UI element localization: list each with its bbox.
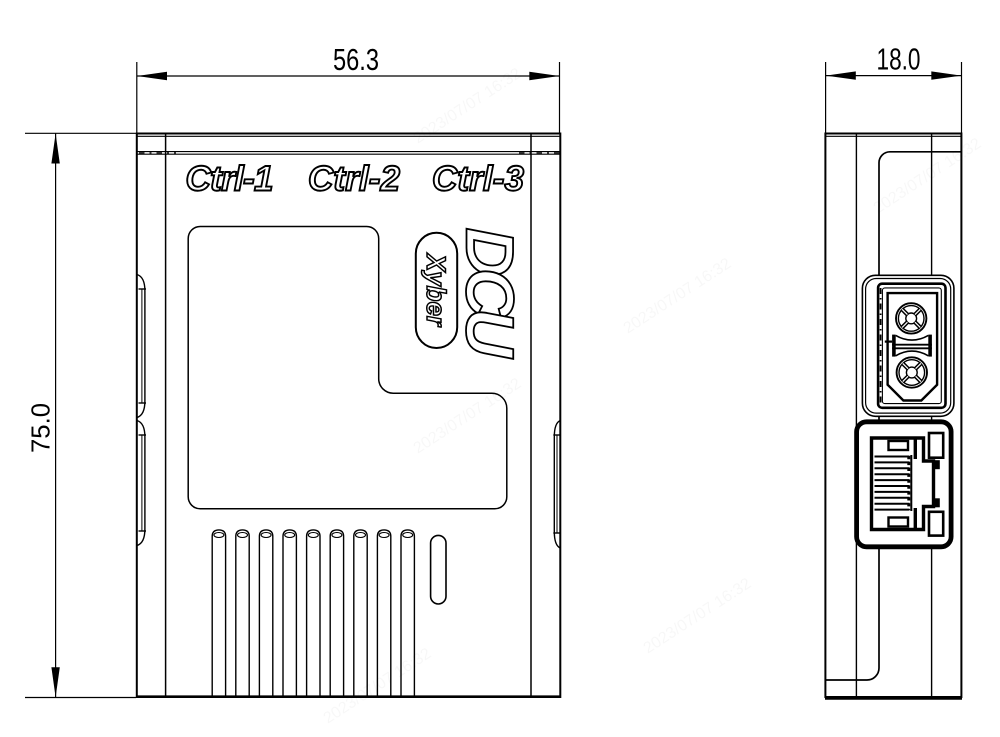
svg-text:DCU: DCU [452,228,528,360]
svg-text:2023/07/07 16:32: 2023/07/07 16:32 [641,575,755,657]
svg-text:18.0: 18.0 [877,42,921,77]
svg-text:2023/07/07 16:32: 2023/07/07 16:32 [871,135,985,217]
svg-text:Xyber: Xyber [421,252,451,327]
svg-text:2023/07/07 16:32: 2023/07/07 16:32 [621,255,735,337]
svg-text:Ctrl-1: Ctrl-1 [186,160,274,199]
svg-text:75.0: 75.0 [26,403,56,453]
svg-text:Ctrl-3: Ctrl-3 [432,160,525,199]
svg-text:56.3: 56.3 [333,42,379,77]
svg-text:Ctrl-2: Ctrl-2 [308,160,401,199]
svg-text:2023/07/07 16:32: 2023/07/07 16:32 [411,65,525,147]
